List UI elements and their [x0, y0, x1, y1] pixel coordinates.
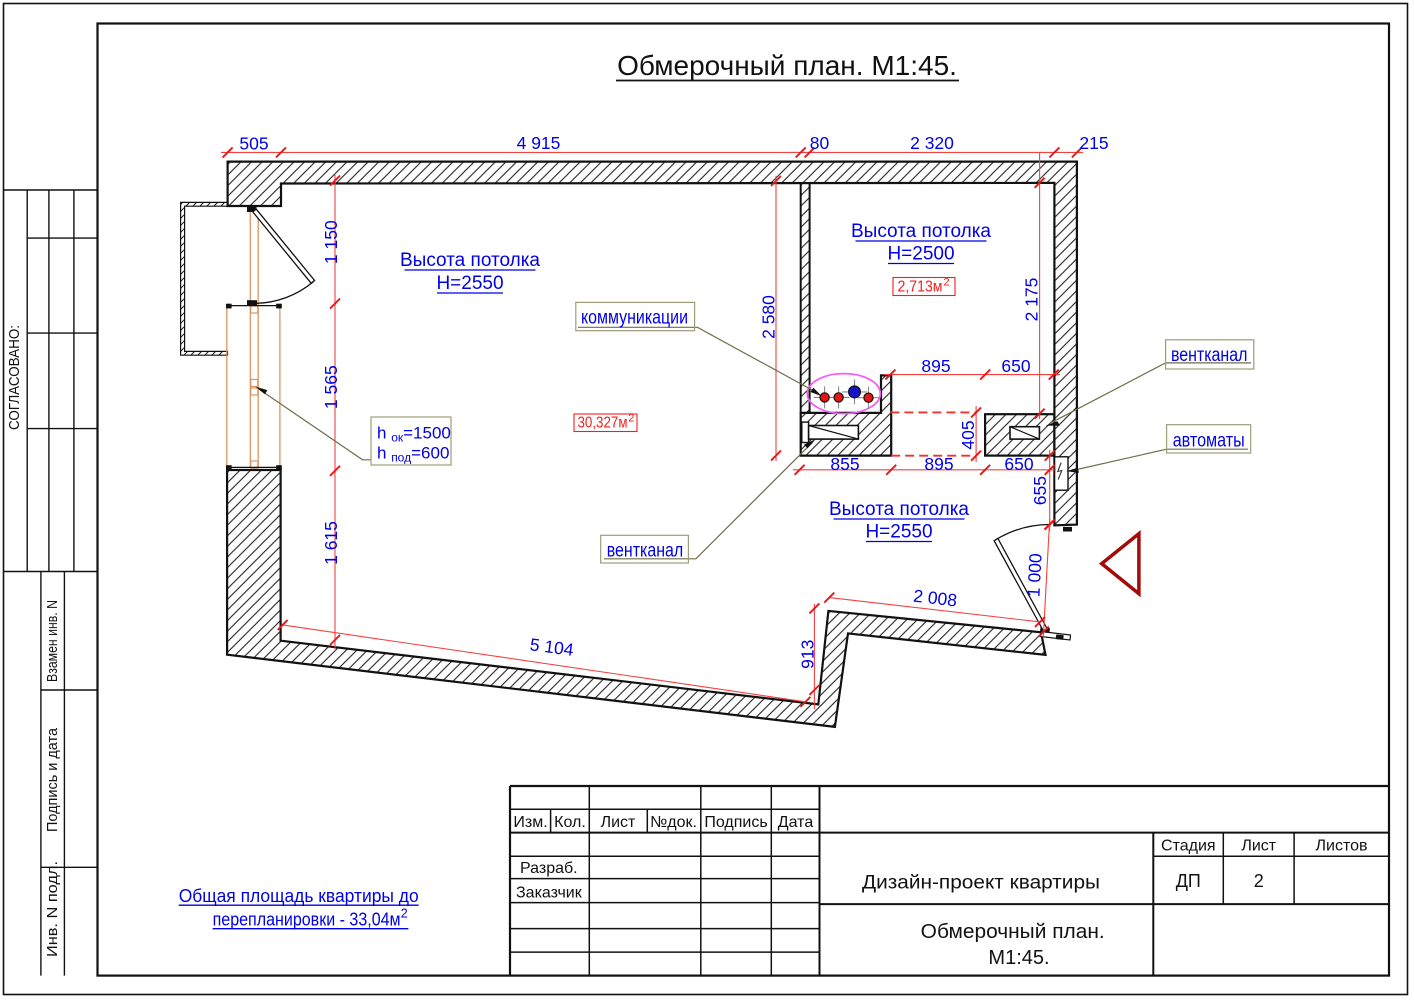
svg-text:855: 855 — [830, 454, 859, 474]
svg-text:650: 650 — [1004, 454, 1033, 474]
svg-text:30,327м: 30,327м — [578, 415, 628, 432]
svg-text:655: 655 — [1030, 476, 1050, 505]
svg-text:2: 2 — [944, 277, 950, 289]
svg-text:895: 895 — [921, 356, 950, 376]
svg-text:505: 505 — [239, 134, 268, 154]
svg-text:ДП: ДП — [1176, 871, 1201, 891]
svg-text:2: 2 — [401, 907, 408, 921]
svg-text:Взамен инв. N: Взамен инв. N — [45, 600, 61, 682]
svg-text:1 565: 1 565 — [321, 365, 341, 409]
svg-text:2 175: 2 175 — [1022, 278, 1042, 322]
svg-text:h под=600: h под=600 — [377, 444, 449, 465]
svg-text:895: 895 — [924, 454, 953, 474]
svg-text:Дизайн-проект квартиры: Дизайн-проект квартиры — [862, 873, 1100, 894]
svg-text:вентканал: вентканал — [1171, 345, 1248, 366]
svg-text:1 615: 1 615 — [321, 521, 341, 565]
svg-text:Обмерочный план. М1:45.: Обмерочный план. М1:45. — [617, 50, 957, 81]
svg-text:2: 2 — [1254, 871, 1264, 891]
svg-text:Дата: Дата — [778, 814, 814, 831]
svg-text:2: 2 — [628, 413, 634, 425]
svg-text:Общая площадь квартиры до: Общая площадь квартиры до — [179, 886, 419, 906]
svg-text:215: 215 — [1079, 133, 1108, 153]
svg-text:Подпись и дата: Подпись и дата — [45, 727, 61, 832]
svg-text:Н=2500: Н=2500 — [887, 244, 954, 265]
svg-text:h ок=1500: h ок=1500 — [377, 424, 451, 445]
svg-text:405: 405 — [958, 420, 978, 449]
svg-text:2 580: 2 580 — [759, 295, 779, 339]
svg-text:Высота потолка: Высота потолка — [400, 250, 540, 271]
svg-text:№док.: №док. — [650, 814, 697, 831]
svg-text:Подпись: Подпись — [704, 814, 767, 831]
svg-text:вентканал: вентканал — [607, 541, 684, 562]
svg-text:1 150: 1 150 — [321, 220, 341, 264]
svg-text:Высота потолка: Высота потолка — [829, 499, 969, 520]
svg-text:Листов: Листов — [1316, 838, 1368, 855]
svg-text:2,713м: 2,713м — [898, 279, 943, 296]
svg-text:Стадия: Стадия — [1161, 838, 1216, 855]
svg-text:Высота потолка: Высота потолка — [851, 221, 991, 242]
svg-text:80: 80 — [810, 133, 830, 153]
svg-text:1 000: 1 000 — [1023, 553, 1045, 598]
svg-text:Заказчик: Заказчик — [516, 885, 583, 902]
svg-text:Обмерочный план.: Обмерочный план. — [921, 921, 1105, 943]
svg-text:Лист: Лист — [1241, 838, 1276, 855]
svg-text:Н=2550: Н=2550 — [865, 522, 932, 543]
svg-text:СОГЛАСОВАНО:: СОГЛАСОВАНО: — [6, 325, 23, 430]
svg-text:4 915: 4 915 — [517, 133, 561, 153]
svg-text:913: 913 — [798, 640, 818, 669]
svg-text:Лист: Лист — [601, 814, 636, 831]
svg-text:Разраб.: Разраб. — [520, 860, 578, 877]
svg-text:Н=2550: Н=2550 — [436, 273, 503, 294]
svg-text:Изм.: Изм. — [513, 814, 547, 831]
svg-text:Кол.: Кол. — [554, 814, 586, 831]
svg-text:автоматы: автоматы — [1173, 431, 1245, 452]
svg-text:Инв. N подл.: Инв. N подл. — [45, 861, 61, 957]
svg-text:коммуникации: коммуникации — [581, 308, 688, 329]
svg-text:перепланировки - 33,04м: перепланировки - 33,04м — [213, 909, 401, 929]
svg-text:2 320: 2 320 — [910, 133, 954, 153]
svg-text:М1:45.: М1:45. — [988, 947, 1049, 969]
svg-text:650: 650 — [1001, 356, 1030, 376]
